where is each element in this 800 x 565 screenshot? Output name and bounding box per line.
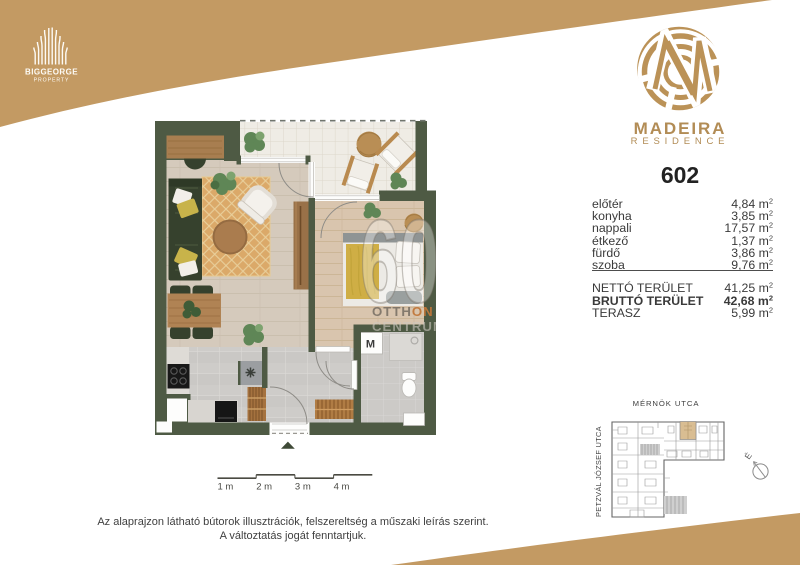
svg-text:2 m: 2 m (256, 482, 272, 493)
svg-text:1 m: 1 m (218, 482, 234, 493)
svg-text:É: É (742, 450, 754, 461)
svg-text:CENTRUM: CENTRUM (372, 319, 445, 334)
svg-text:3 m: 3 m (295, 482, 311, 493)
svg-text:4 m: 4 m (334, 482, 350, 493)
svg-text:OTTHON: OTTHON (372, 304, 434, 319)
svg-text:M: M (366, 339, 375, 351)
